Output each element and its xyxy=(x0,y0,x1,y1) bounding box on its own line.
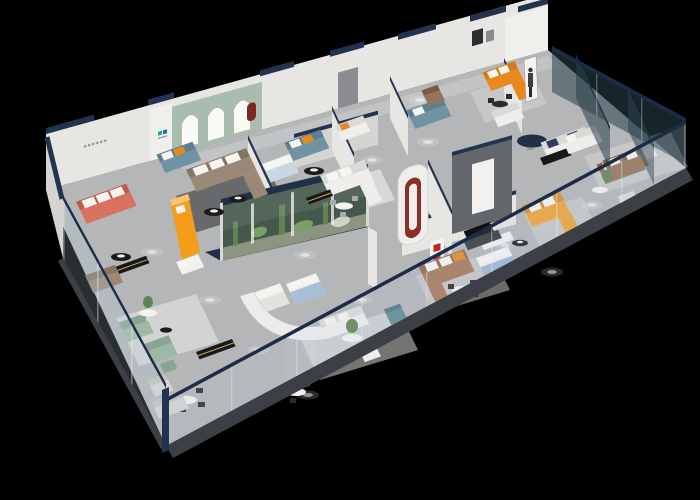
light-glow xyxy=(417,138,439,147)
glass-mullion xyxy=(361,297,362,342)
light-glow xyxy=(294,251,316,260)
scene-canvas xyxy=(0,0,700,500)
glass-mullion xyxy=(231,367,232,412)
picture-frame xyxy=(472,28,483,46)
light-glow xyxy=(541,268,563,277)
glass-mullion xyxy=(63,200,65,261)
glass-mullion xyxy=(596,74,597,117)
coffee-table-black xyxy=(229,195,247,202)
glass-mullion xyxy=(426,262,427,307)
chair xyxy=(506,94,512,99)
standee-figure xyxy=(524,56,538,102)
glass-mullion xyxy=(296,332,297,377)
picture-frame xyxy=(486,29,494,42)
coffee-table-black xyxy=(204,208,224,216)
coffee-table-black xyxy=(160,327,172,332)
door-panel xyxy=(472,158,494,214)
hallway-opening xyxy=(338,67,358,109)
light-glow xyxy=(141,248,163,257)
coffee-table-black xyxy=(304,167,324,175)
glass-mullion xyxy=(97,262,99,323)
glass-mullion xyxy=(556,193,557,238)
glass-mullion xyxy=(491,227,492,272)
light-glow xyxy=(199,296,221,305)
chair xyxy=(290,398,296,403)
chair xyxy=(340,212,346,217)
figure-legs xyxy=(529,87,532,97)
chair xyxy=(488,98,494,103)
coffee-table-black xyxy=(111,253,131,261)
glass-mullion xyxy=(641,98,642,141)
figure-head xyxy=(528,68,532,72)
chair xyxy=(352,196,358,201)
figure-body xyxy=(528,73,533,87)
glass-mullion xyxy=(684,124,685,169)
plant xyxy=(143,296,153,308)
glass-corner-post xyxy=(162,387,169,453)
chair xyxy=(330,200,336,205)
ribbon-cut xyxy=(409,183,417,231)
isometric-showroom-render xyxy=(0,0,700,500)
red-slide-sculpture xyxy=(398,162,428,248)
glass-mullion xyxy=(131,324,133,385)
terrarium-end-panel xyxy=(368,227,377,289)
glass-mullion xyxy=(621,158,622,203)
